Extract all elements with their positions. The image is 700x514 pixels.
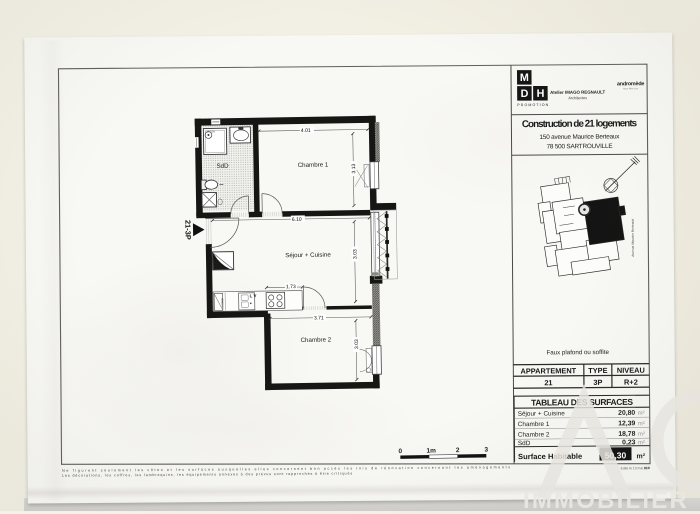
svg-text:IMMOBILIER: IMMOBILIER (523, 487, 689, 511)
